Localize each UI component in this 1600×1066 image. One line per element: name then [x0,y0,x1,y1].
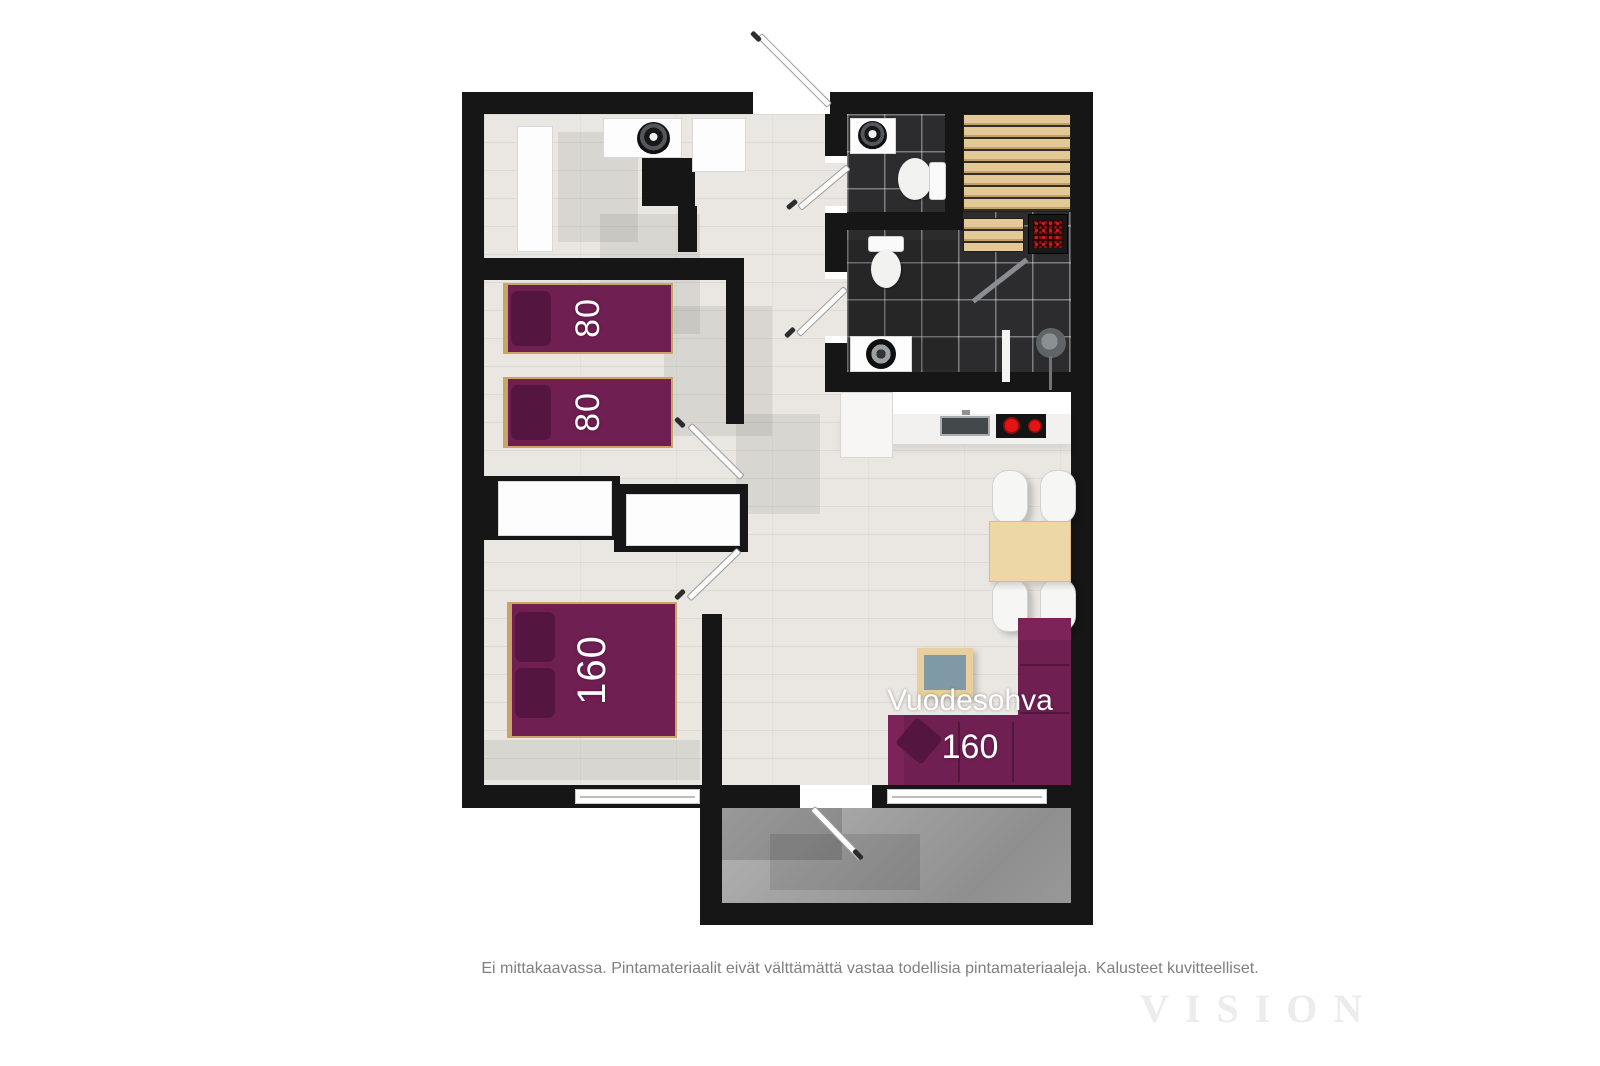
hall-wall-stub [642,158,695,206]
wall-left [462,92,484,808]
kitchen-faucet [962,410,970,415]
closet [498,481,612,536]
bathroom-wall-seg [825,212,847,278]
sofa-label-size: 160 [810,728,1130,767]
toilet-bowl [871,250,901,288]
wc-wall-right [945,114,963,230]
toilet-tank [929,162,946,200]
sofa-label-name: Vuodesohva [810,684,1130,718]
hall-sink-bowl [637,122,670,155]
door-handle [750,30,762,42]
bed-size-label: 80 [568,278,608,358]
kitchen-cabinet [840,392,893,458]
bathroom-wall-bottom [825,372,1071,392]
bedroom2-wall-right [702,614,722,785]
stove-burner [1028,419,1042,433]
toilet-bowl [898,158,932,200]
living-window-sill [892,796,1042,798]
sofa-seam [1020,664,1069,666]
shower-hose [1049,356,1052,390]
washing-machine-drum [866,339,896,369]
bed-size-label: 160 [572,610,612,730]
bed-pillow [511,385,551,440]
wall-top-right [830,92,1093,114]
shower-head [1036,328,1066,358]
door-jamb [825,156,847,163]
floor-shadow [484,740,700,780]
door-jamb [825,336,847,343]
wall-top-left [462,92,753,114]
dining-chair [992,470,1028,524]
sauna-heater-stones [1033,220,1063,248]
kitchen-sink [940,416,990,436]
dining-table [989,521,1071,582]
sauna-bench-low [963,218,1024,252]
bedroom2-window-sill [580,796,695,798]
bed-pillow [515,612,555,662]
bed-size-label: 80 [568,372,608,452]
wc-sink-bowl [858,121,887,150]
bedroom1-wall-right [726,280,744,424]
closet [626,494,740,546]
dining-chair [1040,470,1076,524]
door-jamb [825,206,847,213]
sofa-armrest [1018,618,1071,640]
stove-burner [1003,417,1020,434]
watermark: VISION [1140,985,1378,1032]
door-jamb [825,272,847,279]
terrace-door-opening [800,785,872,808]
bedroom1-wall-top [484,258,744,280]
terrace-wall-bottom [700,903,1093,925]
hall-closet [517,126,553,252]
floor-plan-page: Vuodesohva 160 80 80 160 Ei mittakaavass… [0,0,1600,1066]
entrance-door-leaf [757,33,832,108]
disclaimer-text: Ei mittakaavassa. Pintamateriaalit eivät… [250,960,1490,978]
bed-pillow [511,291,551,346]
hall-wall-stub [678,206,697,252]
bed-pillow [515,668,555,718]
bathroom-wall-seg [825,114,847,162]
hall-cabinet [692,118,746,172]
sauna-benches [963,114,1071,212]
shower-glass-edge [1002,330,1010,382]
floor-shadow [736,414,820,514]
